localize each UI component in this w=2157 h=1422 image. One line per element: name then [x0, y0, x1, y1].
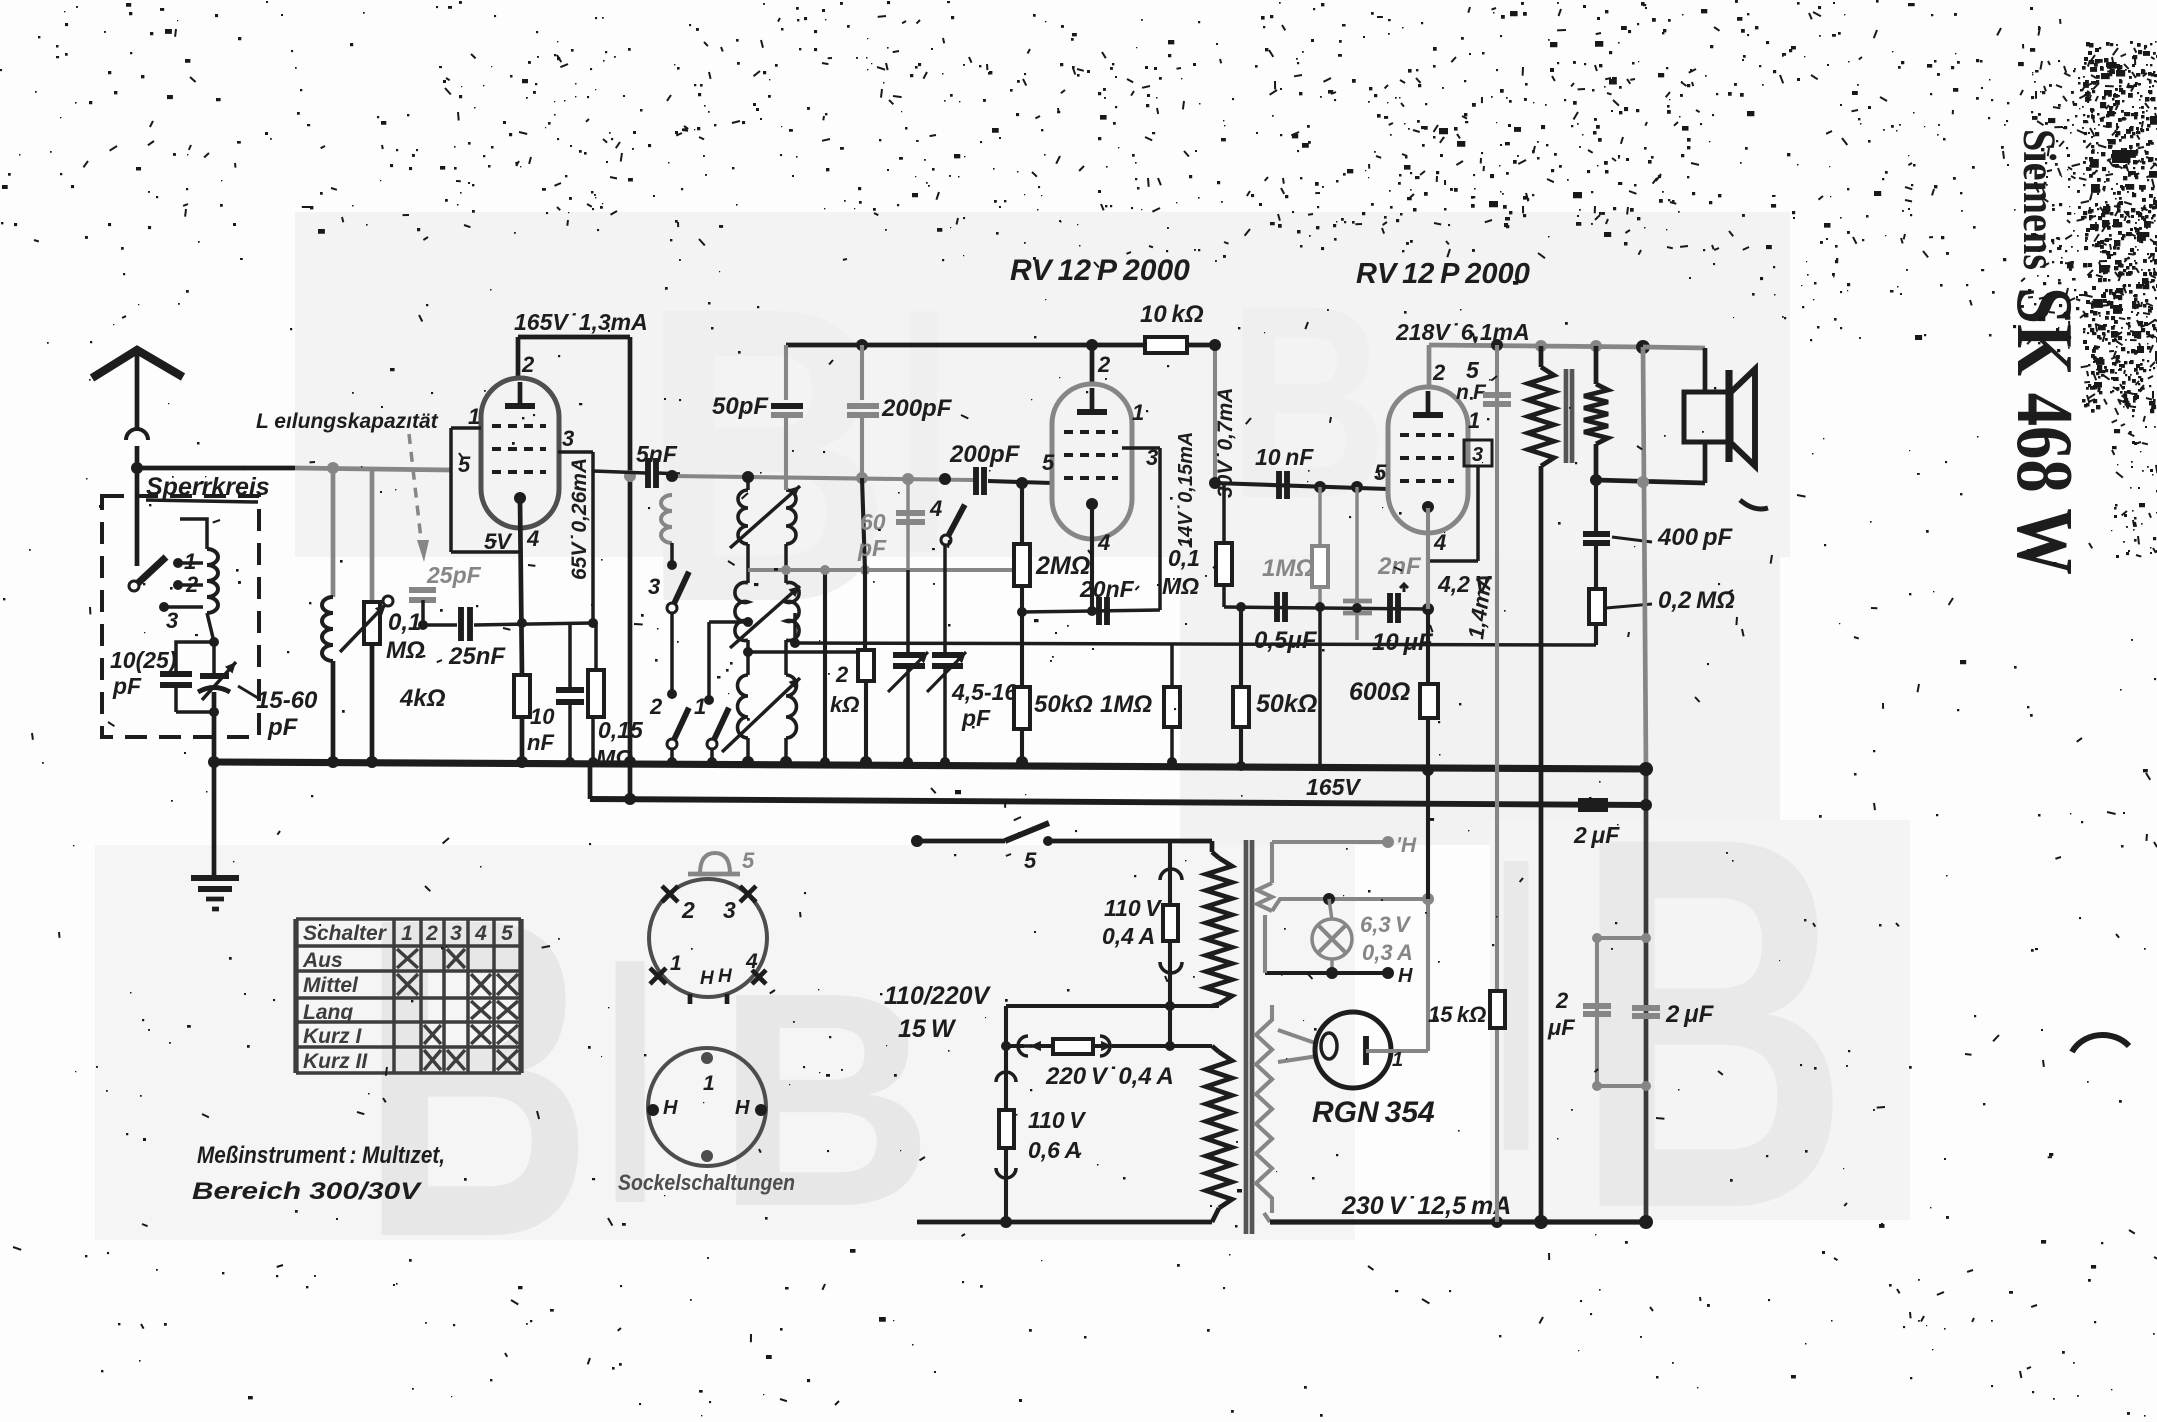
svg-text:Sperrkreis: Sperrkreis [146, 473, 270, 501]
svg-text:0,2 MΩ: 0,2 MΩ [1658, 587, 1735, 614]
svg-text:50kΩ: 50kΩ [1034, 691, 1093, 718]
svg-text:H: H [663, 1097, 678, 1119]
svg-text:200pF: 200pF [949, 441, 1021, 468]
svg-text:3: 3 [166, 608, 178, 633]
svg-text:H: H [718, 966, 733, 987]
svg-text:230 V ̇ 12,5 mA: 230 V ̇ 12,5 mA [1341, 1192, 1511, 1220]
svg-text:2: 2 [1097, 352, 1111, 377]
svg-text:15 W: 15 W [898, 1015, 957, 1043]
svg-text:10(25): 10(25) [110, 647, 176, 673]
svg-text:H: H [1398, 965, 1413, 987]
svg-text:1MΩ: 1MΩ [1100, 691, 1152, 718]
svg-text:3: 3 [648, 574, 660, 599]
svg-text:ʹH: ʹH [1396, 834, 1417, 857]
svg-text:2 μF: 2 μF [1573, 822, 1620, 848]
svg-text:4: 4 [929, 496, 942, 521]
svg-text:nF: nF [527, 730, 554, 755]
svg-text:400 pF: 400 pF [1657, 524, 1734, 551]
svg-text:2: 2 [521, 352, 535, 377]
svg-text:5V: 5V [484, 529, 513, 554]
svg-text:pF: pF [857, 535, 887, 561]
svg-text:10 nF: 10 nF [1255, 444, 1314, 470]
svg-text:n F: n F [1456, 381, 1487, 404]
svg-text:Bereich 300/30V: Bereich 300/30V [192, 1178, 422, 1205]
svg-text:1: 1 [1468, 408, 1480, 433]
svg-text:5nF: 5nF [636, 441, 678, 467]
svg-text:2: 2 [425, 922, 438, 945]
svg-text:50kΩ: 50kΩ [1256, 690, 1317, 718]
svg-text:L eılungskapazıtät: L eılungskapazıtät [256, 410, 439, 433]
svg-text:1: 1 [401, 922, 413, 945]
svg-text:B: B [1228, 249, 1388, 556]
svg-text:1: 1 [468, 404, 480, 429]
svg-text:14V ̇ 0,15mA: 14V ̇ 0,15mA [1175, 432, 1197, 548]
svg-text:2: 2 [1432, 360, 1446, 385]
svg-text:1: 1 [1388, 1049, 1403, 1071]
svg-text:2: 2 [681, 897, 695, 923]
svg-text:1: 1 [1132, 400, 1144, 425]
svg-text:5: 5 [1374, 460, 1387, 485]
svg-text:Aus: Aus [302, 949, 343, 972]
svg-text:6,3 V: 6,3 V [1360, 912, 1412, 937]
svg-text:2: 2 [649, 694, 663, 719]
svg-text:0,15: 0,15 [598, 717, 644, 743]
svg-text:3: 3 [723, 897, 736, 923]
svg-text:10: 10 [530, 704, 555, 729]
svg-text:15-60: 15-60 [256, 687, 318, 714]
svg-text:3: 3 [450, 922, 462, 945]
svg-text:3: 3 [1146, 445, 1158, 470]
svg-text:0,5μF: 0,5μF [1254, 627, 1318, 654]
svg-text:0,4 A: 0,4 A [1102, 923, 1155, 949]
svg-text:μF: μF [1547, 1015, 1575, 1040]
svg-text:4: 4 [745, 950, 758, 973]
svg-text:200pF: 200pF [881, 395, 953, 422]
svg-text:4kΩ: 4kΩ [399, 685, 446, 712]
svg-text:110 V: 110 V [1028, 1107, 1086, 1133]
svg-text:218V ̇ 6,1mA: 218V ̇ 6,1mA [1395, 319, 1530, 345]
svg-text:2nF: 2nF [1377, 553, 1422, 580]
svg-text:2 μF: 2 μF [1665, 1001, 1715, 1028]
svg-text:RV 12 P 2000: RV 12 P 2000 [1010, 254, 1190, 287]
svg-text:pF: pF [961, 705, 991, 731]
svg-text:pF: pF [267, 714, 299, 741]
svg-text:Meßinstrument : Multızet,: Meßinstrument : Multızet, [197, 1142, 445, 1169]
svg-text:165V: 165V [1306, 774, 1361, 800]
svg-text:25pF: 25pF [426, 562, 482, 588]
svg-text:4: 4 [1097, 530, 1110, 555]
svg-text:Mittel: Mittel [303, 974, 359, 997]
svg-text:Sockelschaltungen: Sockelschaltungen [618, 1170, 795, 1195]
svg-text:0,1: 0,1 [388, 609, 421, 636]
svg-text:Schalter: Schalter [303, 922, 388, 945]
svg-text:3: 3 [562, 426, 574, 451]
svg-text:5: 5 [1042, 450, 1055, 475]
svg-text:0,1: 0,1 [1168, 545, 1200, 571]
svg-text:25nF: 25nF [448, 643, 506, 670]
svg-text:2: 2 [835, 662, 849, 687]
svg-text:110/220V: 110/220V [884, 982, 992, 1010]
svg-text:Lang: Lang [303, 1001, 353, 1024]
svg-text:4: 4 [474, 922, 487, 945]
svg-text:10 μF: 10 μF [1372, 629, 1434, 656]
svg-text:3: 3 [1472, 444, 1483, 466]
svg-text:20nF: 20nF [1079, 576, 1135, 602]
svg-text:1MΩ: 1MΩ [1262, 555, 1314, 582]
svg-text:B: B [640, 221, 893, 690]
svg-text:Kurz I: Kurz I [303, 1025, 363, 1048]
svg-text:kΩ: kΩ [830, 692, 859, 717]
svg-text:1: 1 [694, 694, 706, 719]
svg-text:4,5-16: 4,5-16 [951, 679, 1017, 705]
svg-text:1: 1 [703, 1072, 715, 1095]
svg-text:2: 2 [1555, 988, 1569, 1013]
svg-text:0,3 A: 0,3 A [1362, 940, 1413, 965]
svg-text:RGN 354: RGN 354 [1312, 1096, 1435, 1129]
svg-text:MΩ: MΩ [1162, 573, 1199, 599]
svg-text:5: 5 [1466, 357, 1480, 383]
svg-text:4: 4 [526, 526, 539, 551]
svg-text:pF: pF [112, 673, 142, 699]
svg-text:110 V: 110 V [1104, 895, 1162, 921]
svg-text:RV 12 P 2000: RV 12 P 2000 [1356, 258, 1530, 290]
svg-text:1: 1 [670, 952, 682, 975]
svg-text:220 V ̇ 0,4 A: 220 V ̇ 0,4 A [1045, 1063, 1174, 1090]
svg-text:Kurz II: Kurz II [303, 1050, 368, 1073]
svg-text:165V ̇ 1,3mA: 165V ̇ 1,3mA [514, 309, 648, 335]
svg-text:SK 468 W: SK 468 W [2000, 287, 2088, 575]
svg-text:5: 5 [1024, 848, 1037, 873]
svg-text:60: 60 [860, 509, 886, 535]
svg-text:65V ̇ 0,26mA: 65V ̇ 0,26mA [568, 458, 591, 580]
svg-text:5: 5 [742, 848, 755, 873]
svg-text:5: 5 [501, 922, 513, 945]
svg-text:H: H [700, 968, 715, 989]
svg-text:MΩ: MΩ [386, 637, 425, 664]
svg-text:15 kΩ: 15 kΩ [1428, 1002, 1486, 1027]
svg-text:4: 4 [1433, 530, 1446, 555]
svg-text:B: B [360, 824, 593, 1332]
svg-text:50pF: 50pF [712, 393, 769, 420]
svg-text:600Ω: 600Ω [1349, 678, 1410, 706]
svg-text:10 kΩ: 10 kΩ [1140, 301, 1204, 328]
svg-text:0,6 A: 0,6 A [1028, 1137, 1081, 1163]
